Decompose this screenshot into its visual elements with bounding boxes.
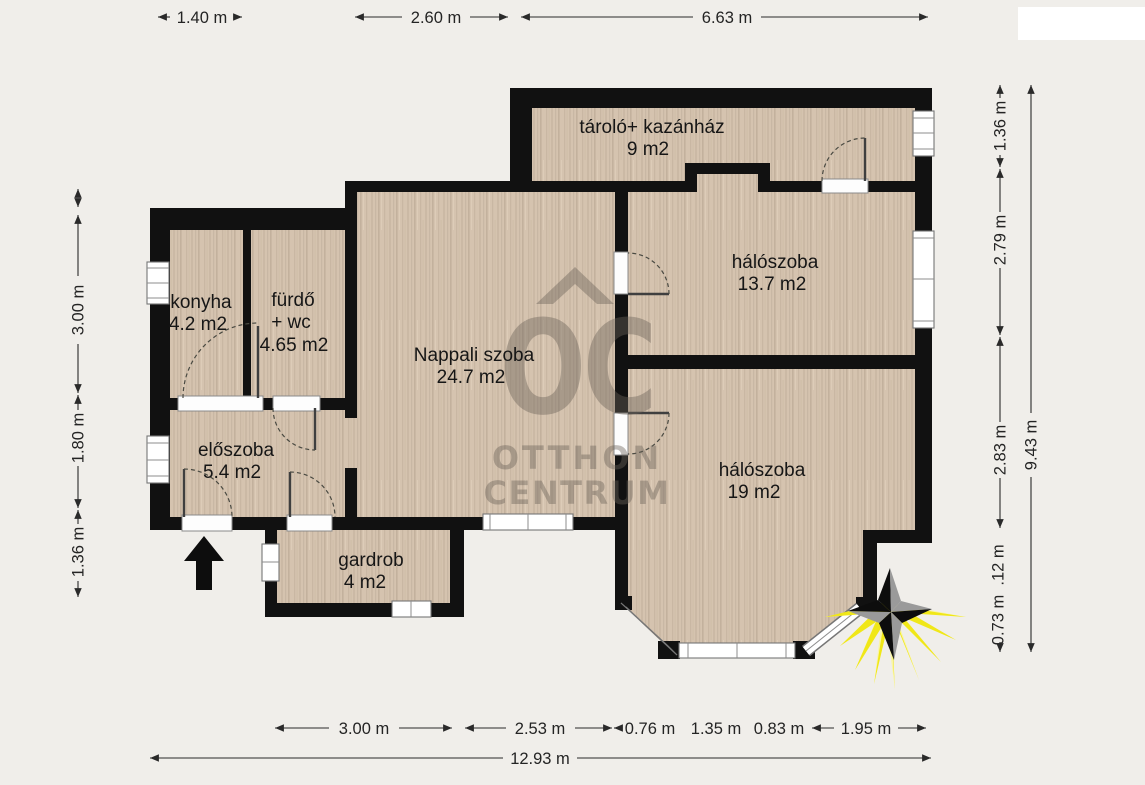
dim-bottom-total: 12.93 m <box>510 750 570 768</box>
floorplan-page: OC OTTHON CENTRUM konyha 4.2 m2 fürdő + … <box>0 0 1145 785</box>
dim-right-0: 1.36 m <box>992 101 1010 151</box>
room-label-haloszoba-kis: hálószoba <box>732 252 819 273</box>
room-area-eloszoba: 5.4 m2 <box>203 462 261 483</box>
window <box>679 643 795 658</box>
room-label-nappali: Nappali szoba <box>414 345 535 366</box>
room-label-eloszoba: előszoba <box>198 440 274 461</box>
room-label-furdo: fürdő <box>271 290 314 311</box>
watermark-oc: OC <box>500 294 654 445</box>
dim-top-1: 2.60 m <box>411 9 461 27</box>
room-area-haloszoba-nagy: 19 m2 <box>728 482 781 503</box>
dim-left-0: 3.00 m <box>70 285 88 335</box>
dim-right-2: 2.83 m <box>992 425 1010 475</box>
window <box>147 436 169 483</box>
dim-right-total: 9.43 m <box>1023 420 1041 470</box>
blank-logo-area <box>1018 7 1145 40</box>
window <box>483 514 573 530</box>
dim-bottom-2: 0.76 m <box>625 720 675 738</box>
window <box>913 111 934 156</box>
dim-right-3: .12 m <box>990 544 1008 585</box>
room-label-tarolo: tároló+ kazánház <box>579 117 724 138</box>
dim-top-2: 6.63 m <box>702 9 752 27</box>
room-area-konyha: 4.2 m2 <box>169 314 227 335</box>
room-area-nappali: 24.7 m2 <box>437 367 506 388</box>
room-area-haloszoba-kis: 13.7 m2 <box>738 274 807 295</box>
watermark-otthon: OTTHON <box>492 439 662 477</box>
room-area-gardrob: 4 m2 <box>344 572 386 593</box>
dim-bottom-5: 1.95 m <box>841 720 891 738</box>
room-area-furdo: 4.65 m2 <box>260 335 329 356</box>
dim-bottom-3: 1.35 m <box>691 720 741 738</box>
dim-left-1: 1.80 m <box>70 413 88 463</box>
room-label-gardrob: gardrob <box>338 550 404 571</box>
dim-right-4: 0.73 m <box>990 595 1008 645</box>
dim-right-1: 2.79 m <box>992 215 1010 265</box>
window <box>392 601 431 617</box>
dim-bottom-1: 2.53 m <box>515 720 565 738</box>
window <box>147 262 169 304</box>
window <box>913 231 934 328</box>
room-label-konyha: konyha <box>170 292 232 313</box>
room-label-furdo-wc: + wc <box>271 312 311 333</box>
watermark-centrum: CENTRUM <box>484 474 671 512</box>
dim-bottom-0: 3.00 m <box>339 720 389 738</box>
floorplan-canvas: OC OTTHON CENTRUM konyha 4.2 m2 fürdő + … <box>0 0 1145 785</box>
window <box>262 544 279 581</box>
dim-bottom-4: 0.83 m <box>754 720 804 738</box>
dim-left-2: 1.36 m <box>70 527 88 577</box>
dim-top-0: 1.40 m <box>177 9 227 27</box>
watermark-logo: OC OTTHON CENTRUM <box>484 267 671 512</box>
room-area-tarolo: 9 m2 <box>627 139 669 160</box>
room-label-haloszoba-nagy: hálószoba <box>719 460 806 481</box>
